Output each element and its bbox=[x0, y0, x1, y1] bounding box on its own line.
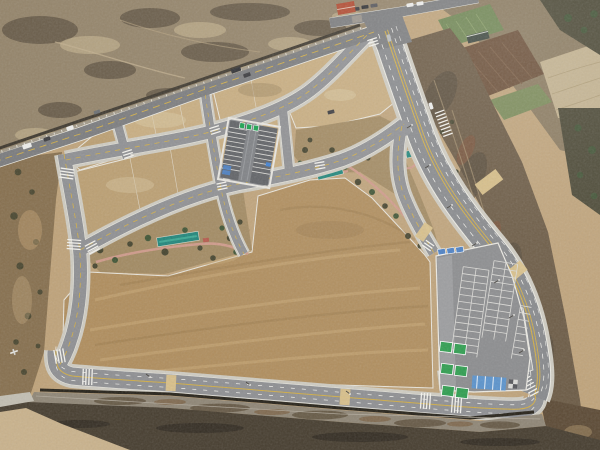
atmospheric-haze bbox=[0, 0, 600, 450]
aerial-photo-canvas bbox=[0, 0, 600, 450]
aerial-photo bbox=[0, 0, 600, 450]
